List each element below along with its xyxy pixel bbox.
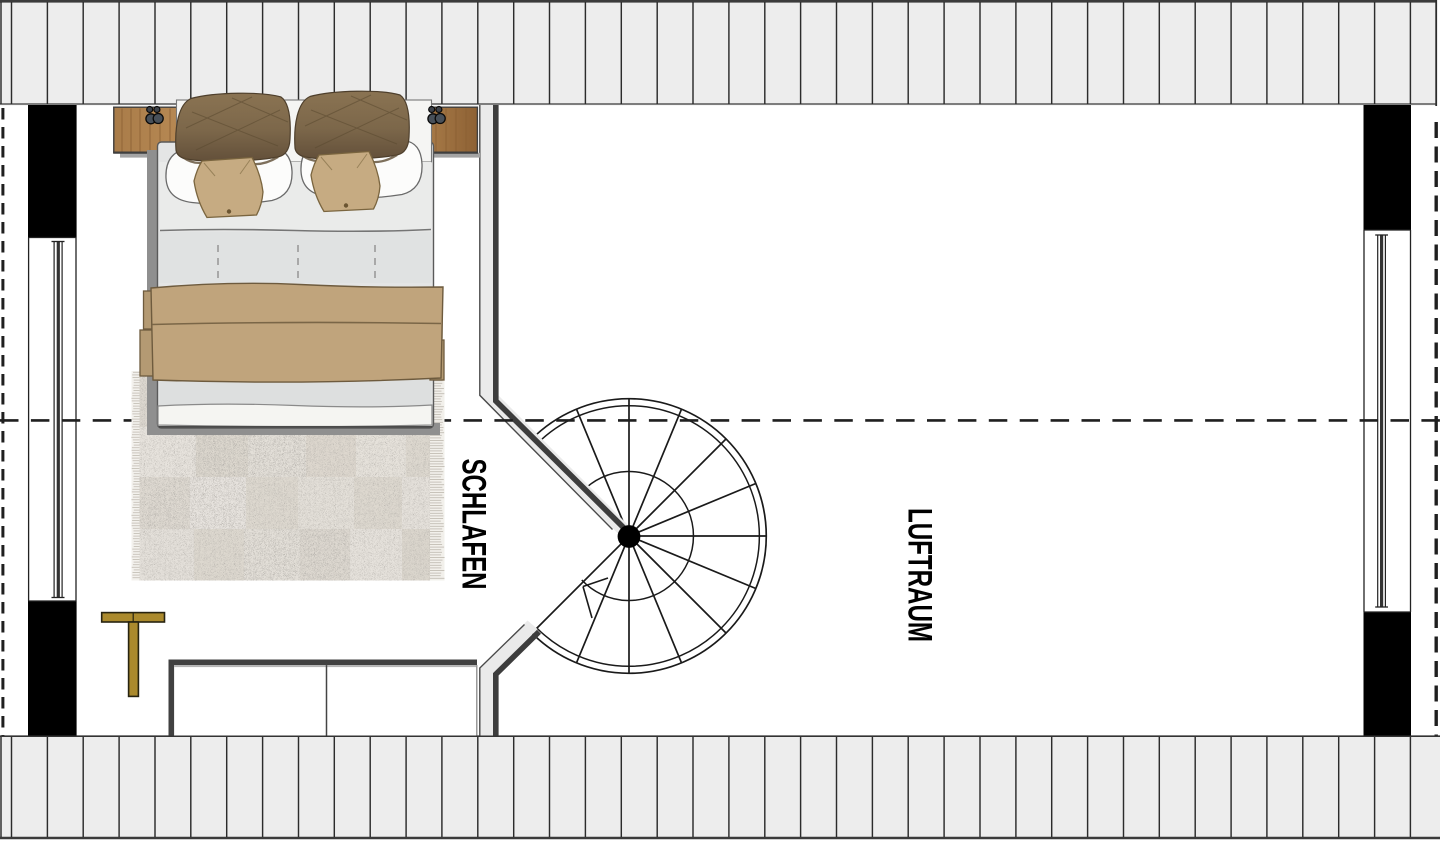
svg-text:LUFTRAUM: LUFTRAUM: [901, 508, 939, 642]
svg-text:SCHLAFEN: SCHLAFEN: [455, 459, 493, 590]
